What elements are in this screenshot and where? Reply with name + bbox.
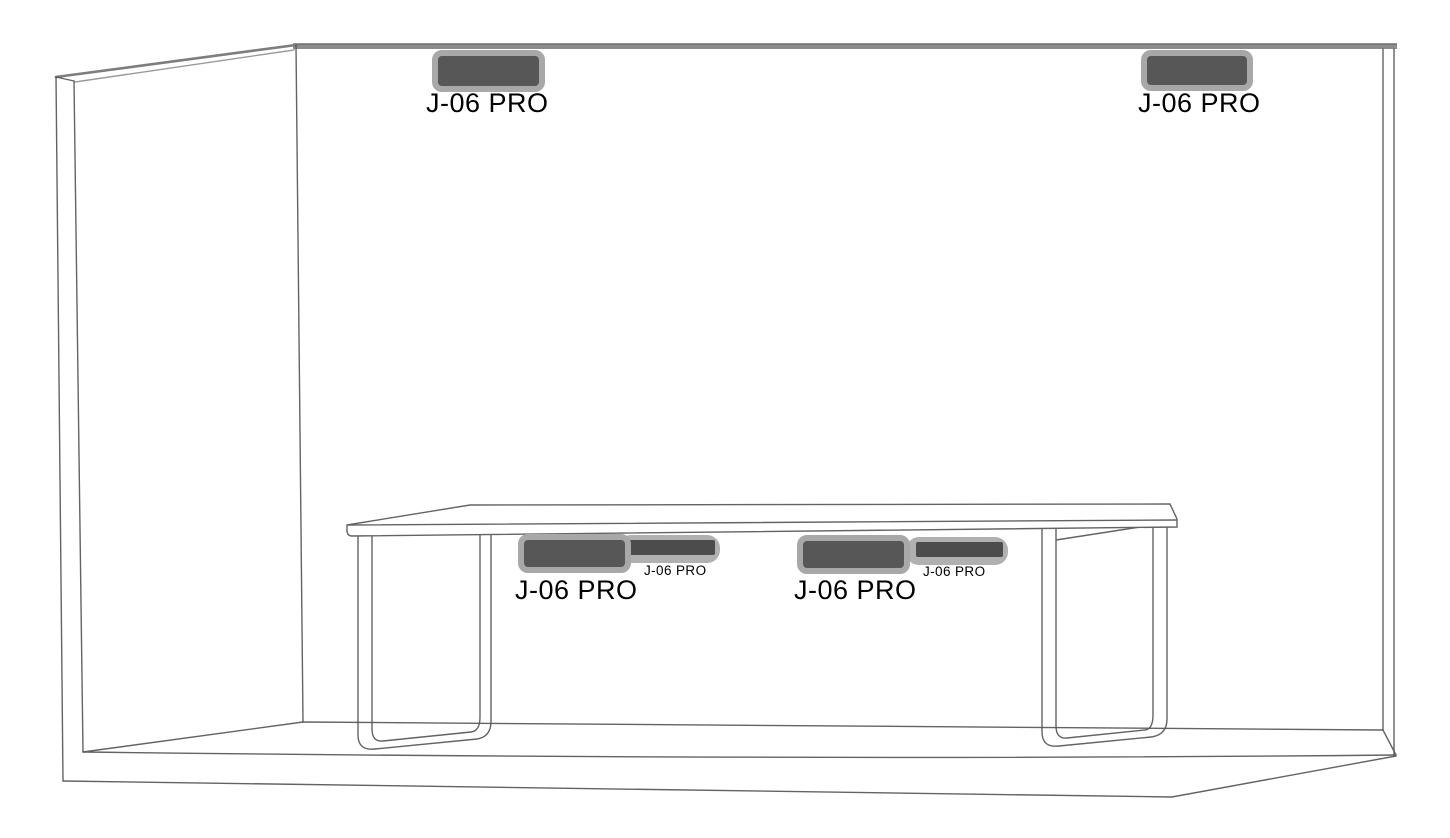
device-wall-right [1141, 50, 1253, 91]
room-line-drawing [0, 0, 1450, 838]
wall-edges [56, 45, 1394, 781]
installation-diagram: J-06 PRO J-06 PRO J-06 PRO J-06 PRO J-06… [0, 0, 1450, 838]
device-table-left-bar [618, 535, 720, 563]
left-wall-corner [56, 77, 74, 81]
table-leg-left-inner [372, 528, 480, 741]
device-wall-right-label: J-06 PRO [1138, 90, 1261, 117]
left-wall-outer-edge [56, 77, 63, 781]
left-wall-top-edge [56, 45, 296, 82]
device-table-left-main [518, 534, 631, 573]
device-table-left-bar-label: J-06 PRO [644, 564, 706, 578]
device-table-right-main [797, 535, 910, 574]
tabletop [347, 504, 1177, 536]
device-table-left-main-label: J-06 PRO [515, 577, 638, 604]
left-wall-inner-edge [74, 81, 83, 752]
table-leg-right-inner [1056, 522, 1153, 738]
device-table-right-bar-label: J-06 PRO [923, 565, 985, 579]
table [347, 504, 1177, 749]
device-wall-left-label: J-06 PRO [426, 90, 549, 117]
floor-slab [63, 722, 1396, 797]
back-wall-left-edge [296, 45, 303, 722]
device-table-right-main-label: J-06 PRO [794, 577, 917, 604]
table-leg-right-outer [1042, 521, 1167, 746]
floor-slab-bottom-edge [63, 756, 1396, 797]
back-wall-top-band [293, 44, 1397, 47]
floor-back-edge [303, 722, 1383, 730]
floor-left-edge [83, 722, 303, 752]
table-leg-left-outer [358, 528, 491, 749]
device-table-right-bar-body [916, 542, 1003, 557]
floor-front-edge [83, 752, 1396, 757]
device-wall-left [432, 50, 545, 92]
device-table-left-bar-body [628, 540, 715, 555]
device-table-right-bar [906, 537, 1008, 565]
